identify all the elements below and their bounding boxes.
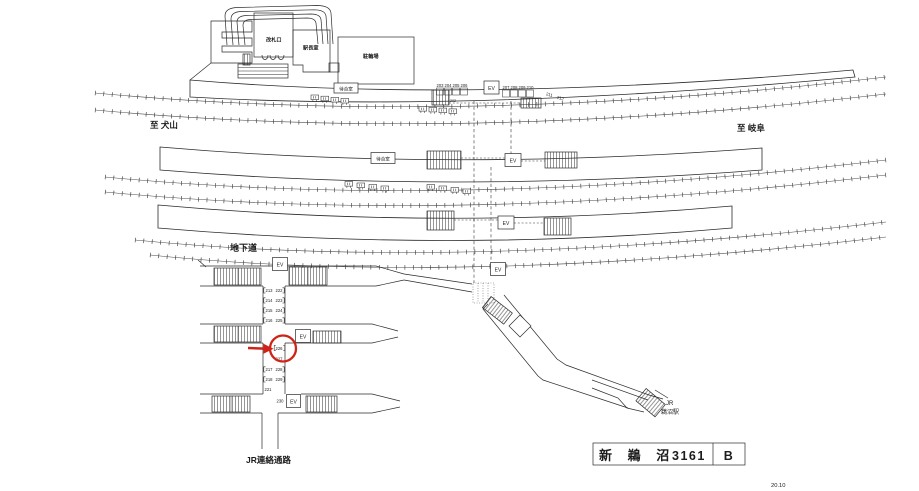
walkway-stairs-upper xyxy=(482,296,512,324)
stair-hatch xyxy=(432,90,449,105)
sign-number: 210 xyxy=(527,85,535,90)
elevator-label: EV xyxy=(277,263,284,269)
drawing-number: 3161 xyxy=(672,449,706,463)
waiting-room-label: 待合室 xyxy=(376,156,390,163)
sheet-code: B xyxy=(724,449,735,463)
station-building: 改札口 駅長室 駐輪場 xyxy=(190,6,414,85)
sign-post xyxy=(341,98,349,105)
sign-post xyxy=(429,107,437,114)
direction-gifu: 至 岐阜 xyxy=(737,123,765,133)
sign-number: 221 xyxy=(265,387,273,392)
sign-post xyxy=(463,189,471,196)
sign-post xyxy=(427,185,435,192)
building-connector xyxy=(329,63,339,72)
concourse-block xyxy=(254,13,293,57)
station-name: 新 鵜 沼 xyxy=(599,448,675,463)
stair-hatch xyxy=(545,152,577,168)
walkway-wall-outer xyxy=(504,295,663,399)
sign-number: 205 xyxy=(453,83,461,88)
sign-number-highlighted: 226 xyxy=(276,346,284,351)
waiting-room-label: 待合室 xyxy=(339,85,353,92)
sign-post xyxy=(357,183,365,190)
sign-bracket xyxy=(283,345,285,350)
sign-bracket xyxy=(283,308,285,313)
jr-passage-walls xyxy=(262,413,278,449)
sign-number: 223 xyxy=(276,298,284,303)
sign-number: 203 xyxy=(437,83,445,88)
jr-connecting-passage-label: JR連絡通路 xyxy=(246,455,291,465)
sign-number: 207 xyxy=(503,85,511,90)
direction-inuyama: 至 犬山 xyxy=(150,120,178,130)
station-layout-svg: 改札口 駅長室 駐輪場 待合室 203 204 205 206 202 EV 2… xyxy=(0,0,919,491)
station-map-drawing: 改札口 駅長室 駐輪場 待合室 203 204 205 206 202 EV 2… xyxy=(0,0,919,491)
elevator-label: EV xyxy=(300,335,307,341)
passage-link-walls xyxy=(404,274,472,292)
sign-post xyxy=(439,108,447,115)
sign-number: 209 xyxy=(519,85,527,90)
stair-hatch xyxy=(313,331,341,343)
sign-bracket xyxy=(283,298,285,303)
escalator-hatch xyxy=(243,54,250,65)
sign-number: 228 xyxy=(276,367,284,372)
sign-post xyxy=(419,107,427,114)
highlight-arrow-shaft xyxy=(248,348,264,349)
sign-number: 206 xyxy=(461,83,469,88)
sign-post xyxy=(449,109,457,116)
sign-number: 208 xyxy=(511,85,519,90)
elevator-label: EV xyxy=(510,159,517,165)
trackside-signs xyxy=(345,182,471,196)
sign-number: 215 xyxy=(266,308,274,313)
underground-passage-label: 地下道 xyxy=(230,242,257,253)
elevator-label: EV xyxy=(290,400,297,406)
sign-number: 225 xyxy=(276,318,284,323)
sign-post xyxy=(381,186,389,193)
bicycle-parking-block xyxy=(338,37,414,84)
sign-number: 216 xyxy=(266,318,274,323)
sign-number: 222 xyxy=(276,288,284,293)
highlight-circle xyxy=(270,336,296,362)
walkway-diamond xyxy=(509,315,531,337)
landing-dotted-lines xyxy=(478,283,488,303)
stair-hatch xyxy=(427,211,454,230)
revision-date: 20.10 xyxy=(771,483,786,489)
sign-number: 214 xyxy=(266,298,274,303)
bicycle-parking-label: 駐輪場 xyxy=(363,52,379,60)
underground-passage-map: 地下道 EV EV EV JR連絡通路 xyxy=(198,242,404,465)
sign-post xyxy=(439,186,447,193)
sign-post xyxy=(345,182,353,189)
sign-number: 230 xyxy=(277,399,285,404)
sign-number: 229 xyxy=(276,377,284,382)
entrance-steps xyxy=(238,64,288,78)
stair-hatch xyxy=(544,218,571,235)
sign-number-slanted: 212 xyxy=(556,95,565,102)
sign-number: 224 xyxy=(276,308,284,313)
sign-bracket xyxy=(283,288,285,293)
sign-post xyxy=(451,188,459,195)
stair-hatch xyxy=(214,268,261,285)
sign-post xyxy=(331,97,339,104)
elevator-label: EV xyxy=(503,221,510,227)
stair-hatch xyxy=(214,326,261,342)
stair-hatch xyxy=(521,98,541,108)
sign-number-small: 202 xyxy=(450,99,456,103)
sign-post xyxy=(369,185,377,192)
stair-hatch xyxy=(427,151,461,169)
track-ticks xyxy=(150,237,886,267)
elevator-label: EV xyxy=(488,86,495,92)
station-master-label: 駅長室 xyxy=(303,44,319,52)
highlight-arrow-head xyxy=(264,344,274,354)
sign-bracket xyxy=(283,377,285,382)
sign-number: 217 xyxy=(266,367,274,372)
sign-number: 218 xyxy=(266,377,274,382)
sign-bracket xyxy=(283,367,285,372)
jr-unuma-station-label: 鵜沼駅 xyxy=(661,408,679,416)
stair-hatch xyxy=(306,396,337,412)
sign-number: 213 xyxy=(266,288,274,293)
building-edge xyxy=(190,63,211,80)
ticket-gate-label: 改札口 xyxy=(266,36,282,44)
sign-bracket xyxy=(283,318,285,323)
jr-label: JR xyxy=(666,401,674,407)
jr-walkway: EV JR 鵜沼駅 xyxy=(404,263,679,417)
elevator-label: EV xyxy=(495,268,502,274)
sign-number: 204 xyxy=(445,83,453,88)
title-block: 新 鵜 沼 3161 B xyxy=(593,443,745,465)
